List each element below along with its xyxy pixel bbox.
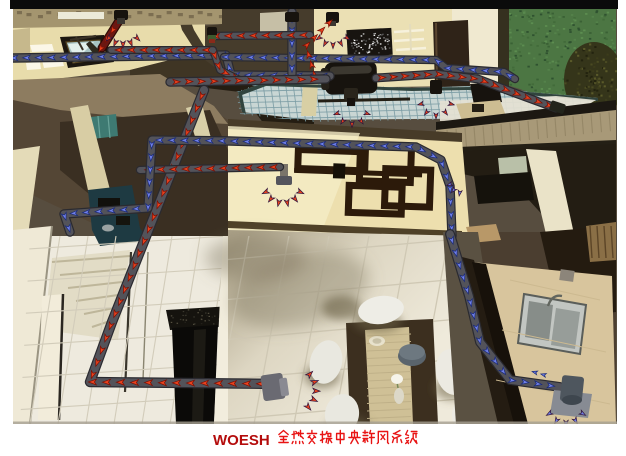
svg-text:WOESH: WOESH bbox=[213, 432, 270, 449]
